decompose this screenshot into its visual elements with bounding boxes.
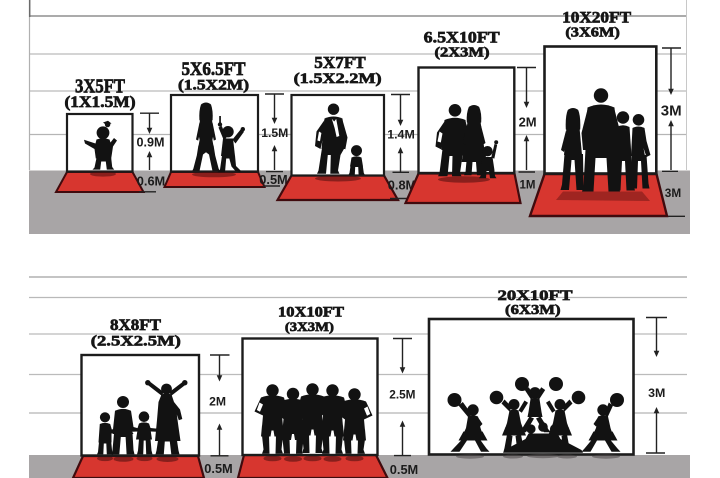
- svg-text:(1X1.5M): (1X1.5M): [65, 94, 136, 111]
- svg-text:0.6M: 0.6M: [137, 174, 165, 189]
- svg-text:(1.5X2.2M): (1.5X2.2M): [294, 70, 382, 87]
- svg-text:1.4M: 1.4M: [387, 128, 415, 142]
- svg-text:0.5M: 0.5M: [204, 461, 232, 476]
- svg-text:(2X3M): (2X3M): [435, 45, 490, 61]
- svg-text:2M: 2M: [519, 115, 537, 130]
- svg-text:1M: 1M: [520, 180, 536, 192]
- svg-text:(3X6M): (3X6M): [565, 25, 620, 41]
- svg-text:0.5M: 0.5M: [259, 172, 287, 187]
- svg-text:0.5M: 0.5M: [390, 462, 418, 477]
- svg-text:0.9M: 0.9M: [137, 135, 165, 149]
- svg-text:1.5M: 1.5M: [261, 126, 288, 140]
- svg-text:3M: 3M: [661, 103, 682, 120]
- svg-text:2.5M: 2.5M: [389, 388, 415, 402]
- svg-text:3M: 3M: [665, 186, 682, 200]
- svg-text:8X8FT: 8X8FT: [110, 315, 161, 334]
- svg-text:(1.5X2M): (1.5X2M): [178, 78, 249, 94]
- svg-text:(3X3M): (3X3M): [285, 319, 334, 334]
- svg-text:3M: 3M: [648, 386, 665, 400]
- svg-text:(2.5X2.5M): (2.5X2.5M): [91, 333, 181, 349]
- svg-text:(6X3M): (6X3M): [505, 302, 561, 318]
- svg-text:2M: 2M: [209, 395, 226, 409]
- svg-text:10X20FT: 10X20FT: [562, 8, 631, 26]
